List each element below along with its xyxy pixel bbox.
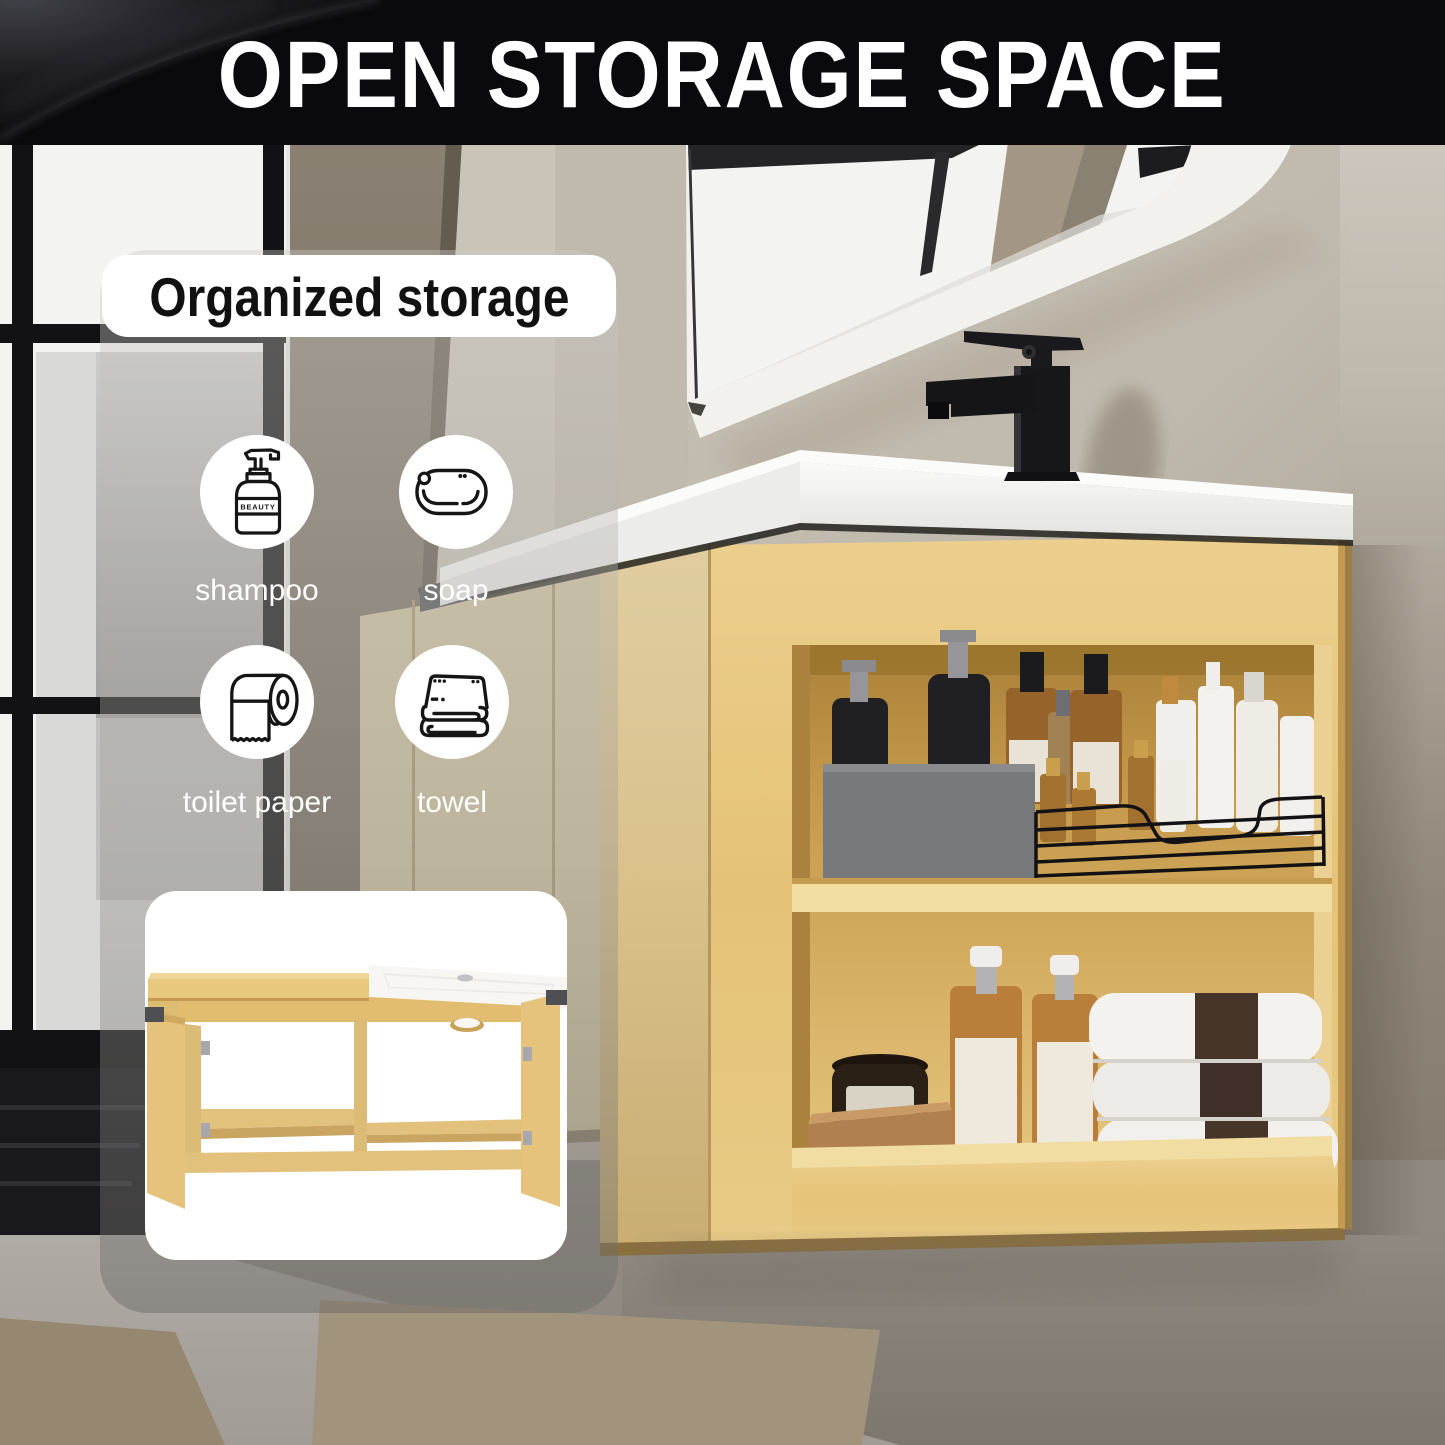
- svg-text:BEAUTY: BEAUTY: [240, 503, 275, 512]
